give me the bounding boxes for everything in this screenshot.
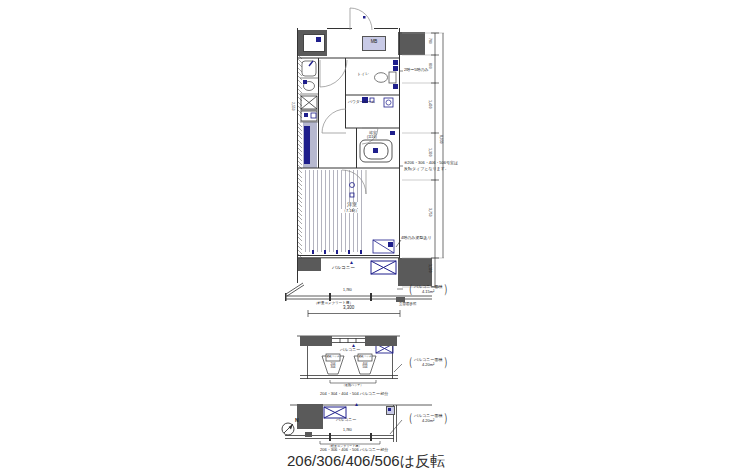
elevation-ref-note: 立面図参照 <box>399 303 417 307</box>
mid-wall-left <box>300 336 332 346</box>
open-paren: （ <box>404 409 413 427</box>
floorplan-sheet: MB <box>0 0 730 470</box>
dim-seg-4: 1,300 <box>427 148 431 157</box>
room-label: 洋室 <box>346 202 358 208</box>
dim-seg-6: 1,100 <box>427 264 431 273</box>
floors-only-note: 2階〜5階のみ <box>404 68 429 72</box>
room-size-label: （7.1帖） <box>341 209 361 213</box>
dim-rail-bottom: 1,780 <box>343 429 352 433</box>
hatch-bracket-label: （避難ハッチ） <box>342 384 363 387</box>
dim-seg-1: 780 <box>427 38 431 44</box>
close-paren: ） <box>443 409 452 427</box>
close-paren: ） <box>443 353 452 371</box>
mirror-note-line2: 反転タイプとなります。 <box>404 167 449 171</box>
powder-room-label: パウダールーム <box>348 100 375 104</box>
balcony-area-main: （ バルコニー面積 4.15m² ） <box>404 283 452 296</box>
toilet-label: トイレ <box>357 72 369 76</box>
kitchen-sink <box>302 61 316 91</box>
mid-caption: 204・304・404・504 バルコニー部分 <box>320 392 388 396</box>
hatch-units-right: 404 504 <box>360 363 370 370</box>
hatch-units-left: 204 304 <box>328 363 338 370</box>
balcony-label-mid: バルコニー <box>340 348 360 352</box>
balcony-area-main-value: 4.15m² <box>422 290 434 295</box>
balcony-area-bottom-value: 4.20m² <box>422 419 434 424</box>
dim-total: 8,030 <box>438 135 442 144</box>
dim-seg-3: 1,400 <box>427 100 431 109</box>
dim-seg-5: 3,750 <box>427 208 431 217</box>
bottom-wall-left <box>297 404 323 429</box>
beam-note: 4階のみ梁型あり <box>401 236 432 240</box>
dim-width: 3,300 <box>343 306 354 311</box>
hatch-label-left: 避難ハッチ <box>327 356 340 359</box>
toilet-fixture <box>375 72 397 83</box>
washer-box <box>301 96 317 121</box>
bottom-meter-icon <box>388 408 391 411</box>
balcony-label-main: バルコニー <box>332 266 355 271</box>
footer-title: 206/306/406/506は反転 <box>278 452 454 470</box>
dim-left: 2,550 <box>290 102 294 111</box>
balcony-area-bottom: （ バルコニー面積 4.20m² ） <box>404 412 452 425</box>
north-compass <box>282 423 294 435</box>
balcony-hatch-box <box>371 261 396 274</box>
entry-marker-bottom: ▲ <box>354 402 359 407</box>
hatch-label-right: 避難ハッチ <box>359 356 372 359</box>
balcony-area-mid-value: 4.20m² <box>422 363 434 368</box>
close-paren: ） <box>443 280 452 298</box>
balcony-area-mid: （ バルコニー面積 4.20m² ） <box>404 356 452 369</box>
bath-size-label: (1116) <box>367 136 377 140</box>
mid-wall-right <box>365 336 397 346</box>
mirror-note-line1: ※206・306・406・506号室は <box>404 161 458 165</box>
dim-seg-2: 800 <box>427 63 431 69</box>
balcony-label-bottom: バルコニー <box>336 418 356 422</box>
north-label: N <box>295 418 299 424</box>
open-paren: （ <box>404 280 413 298</box>
dim-rail-main: 1,780 <box>343 289 352 293</box>
open-paren: （ <box>404 353 413 371</box>
